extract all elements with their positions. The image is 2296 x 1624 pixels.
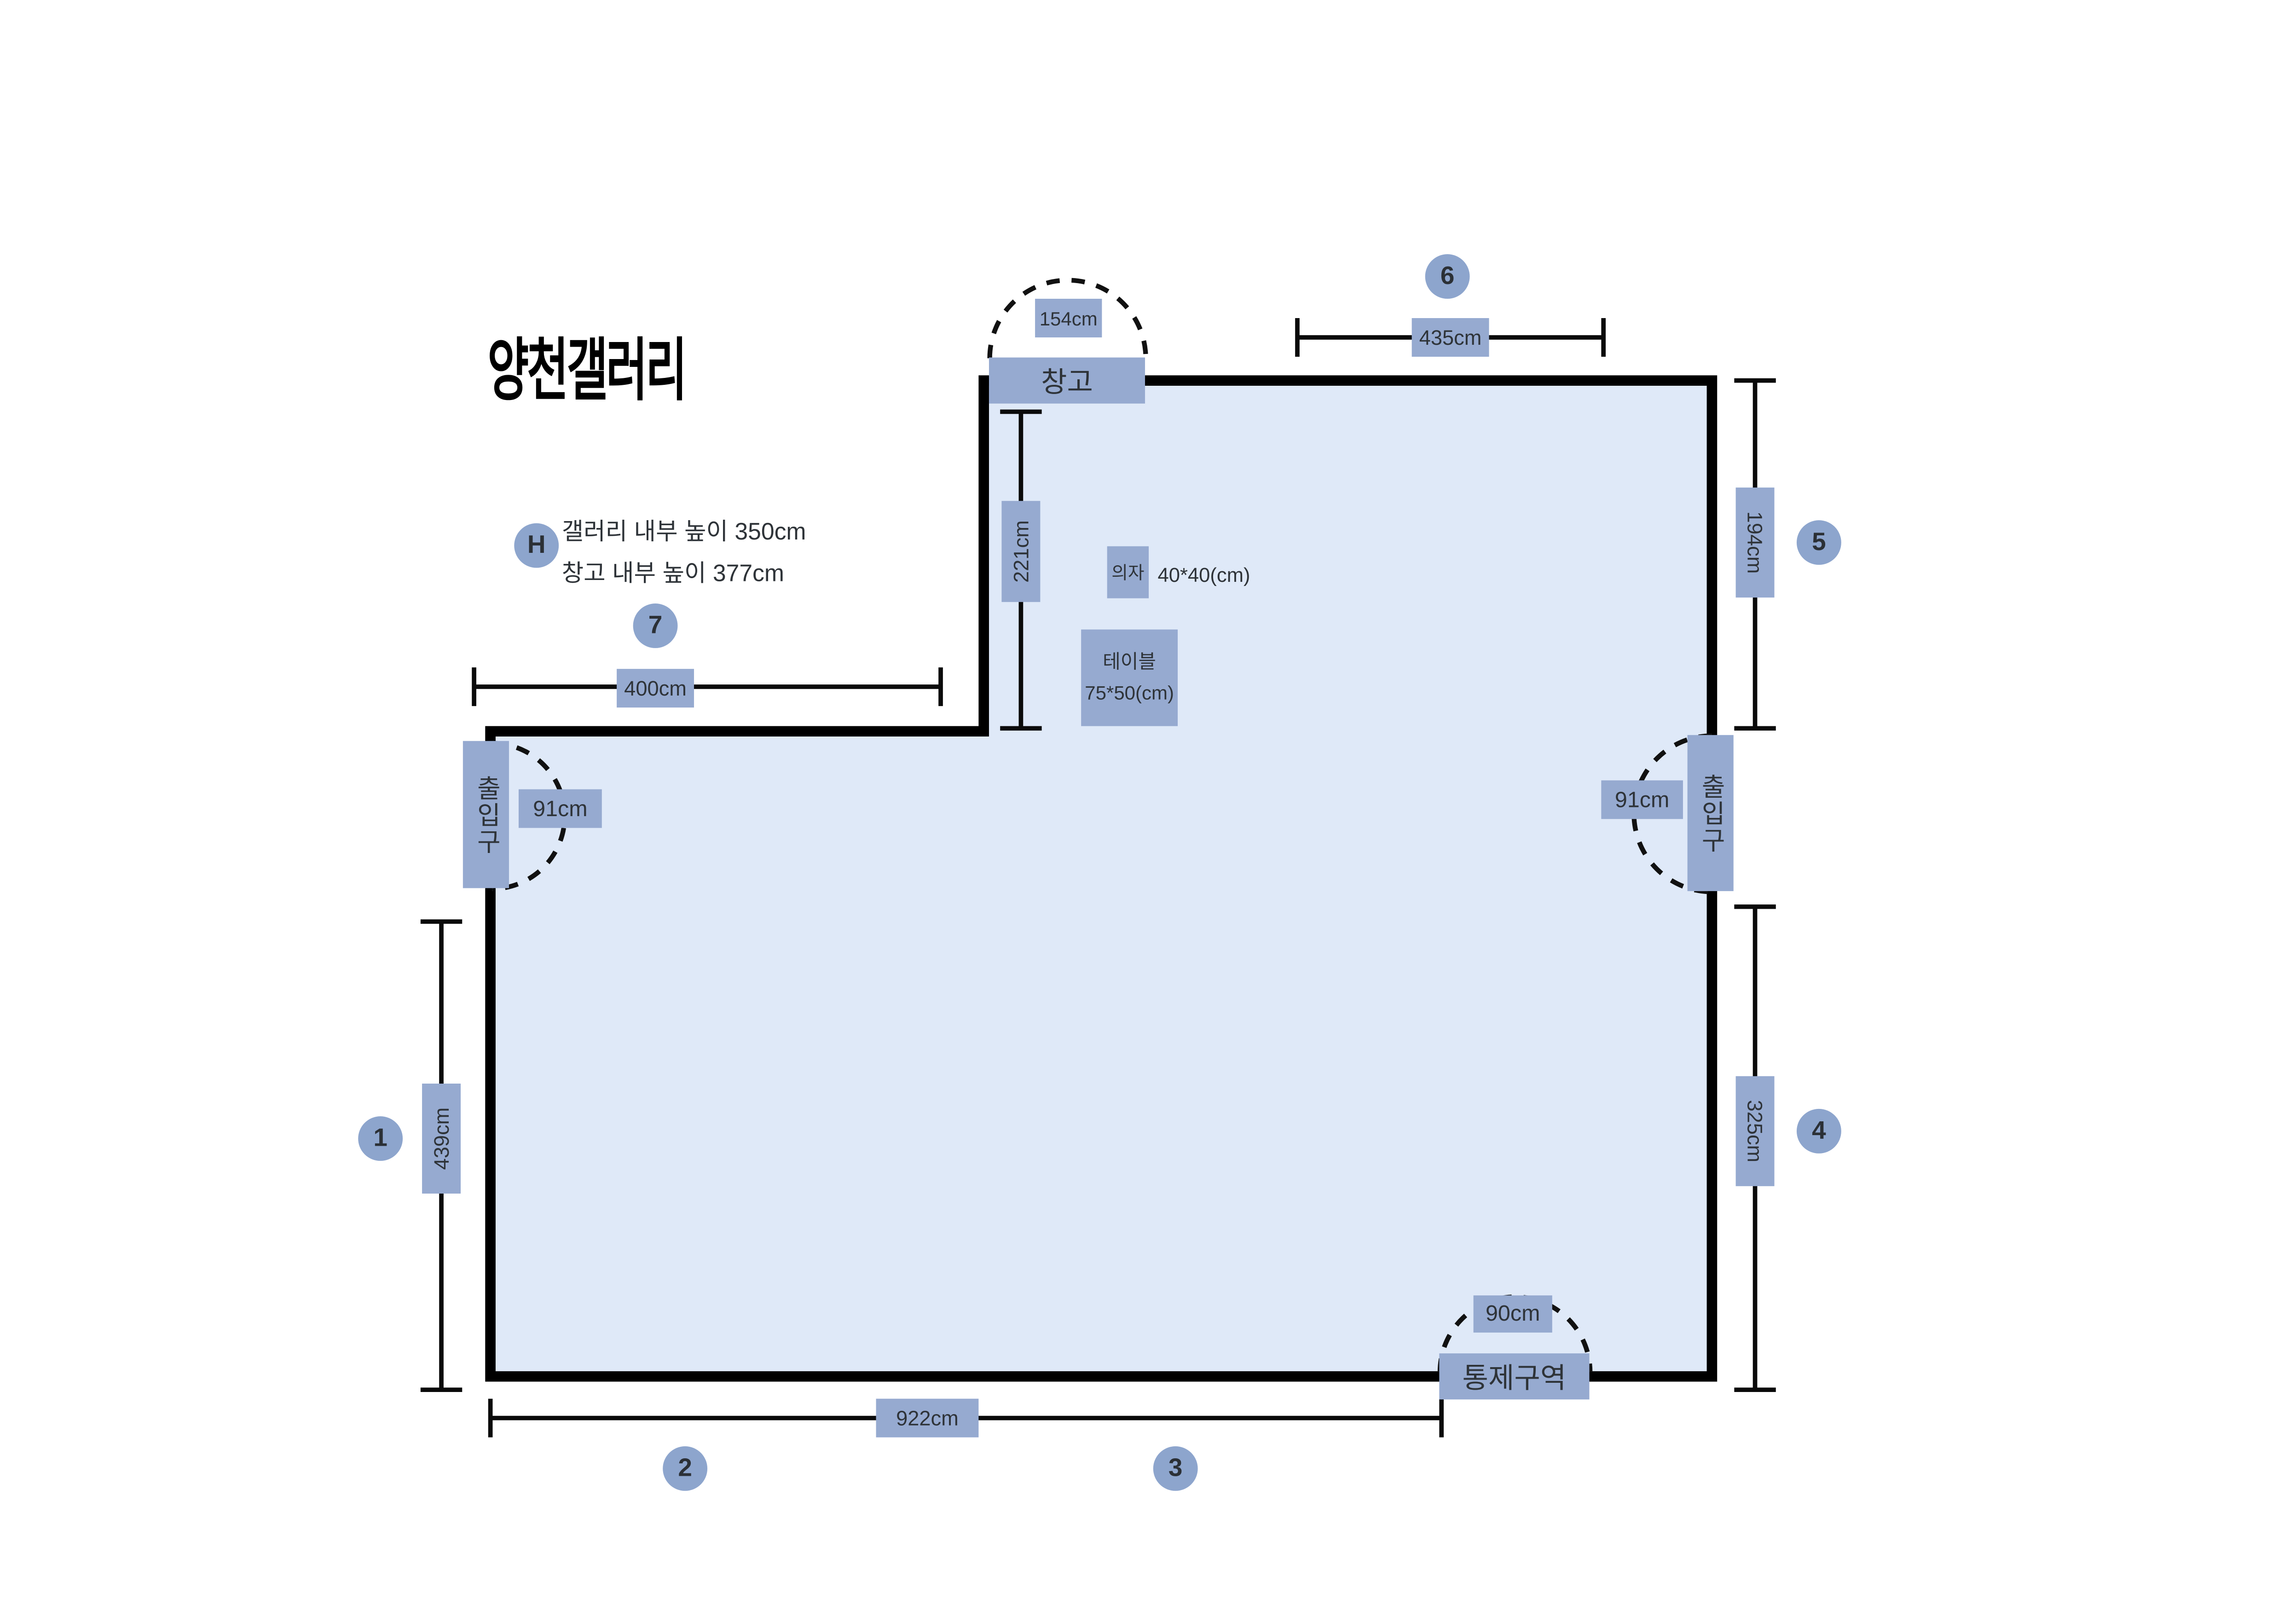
wall-marker-5: 5 <box>1797 520 1841 565</box>
storage-height-note: 창고 내부 높이 377cm <box>562 553 784 588</box>
wall-marker-3: 3 <box>1153 1446 1198 1491</box>
wall-marker-7: 7 <box>633 603 678 648</box>
entrance-right-label: 출입구 <box>1688 735 1734 891</box>
left-wall-length-label: 439cm <box>422 1084 461 1194</box>
floor-plan-drawing <box>0 0 2296 1624</box>
height-legend-badge: H <box>514 523 559 568</box>
right-upper-wall-length-label: 194cm <box>1736 487 1775 597</box>
dimension-line-top-left-wall <box>474 667 941 706</box>
top-right-wall-length-label: 435cm <box>1412 318 1489 357</box>
floor-plan-page: 양천갤러리 H 갤러리 내부 높이 350cm 창고 내부 높이 377cm 창… <box>0 0 2296 1624</box>
wall-marker-2: 2 <box>663 1446 707 1491</box>
right-lower-wall-length-label: 325cm <box>1736 1076 1775 1186</box>
storage-door-width-label: 154cm <box>1035 299 1102 337</box>
table-box: 테이블 75*50(cm) <box>1081 630 1178 726</box>
entrance-left-label: 출입구 <box>463 741 509 888</box>
restricted-door-width-label: 90cm <box>1474 1295 1552 1333</box>
storage-room-label: 창고 <box>989 358 1145 404</box>
table-size-text: 75*50(cm) <box>1085 678 1174 708</box>
inner-wall-length-label: 221cm <box>1001 501 1040 602</box>
bottom-wall-length-label: 922cm <box>876 1399 979 1438</box>
entrance-right-door-width-label: 91cm <box>1601 780 1683 819</box>
top-left-wall-length-label: 400cm <box>617 669 694 708</box>
chair-box-label: 의자 <box>1107 546 1149 598</box>
gallery-height-note: 갤러리 내부 높이 350cm <box>562 511 806 547</box>
table-box-label: 테이블 <box>1103 648 1156 678</box>
floor-plan-canvas: 양천갤러리 H 갤러리 내부 높이 350cm 창고 내부 높이 377cm 창… <box>0 0 2296 1624</box>
wall-marker-6: 6 <box>1425 254 1470 299</box>
wall-marker-1: 1 <box>358 1116 403 1161</box>
chair-size-text: 40*40(cm) <box>1157 564 1250 586</box>
restricted-area-label: 통제구역 <box>1439 1353 1589 1399</box>
page-title: 양천갤러리 <box>487 336 685 405</box>
entrance-left-door-width-label: 91cm <box>519 789 602 828</box>
wall-marker-4: 4 <box>1797 1109 1841 1154</box>
